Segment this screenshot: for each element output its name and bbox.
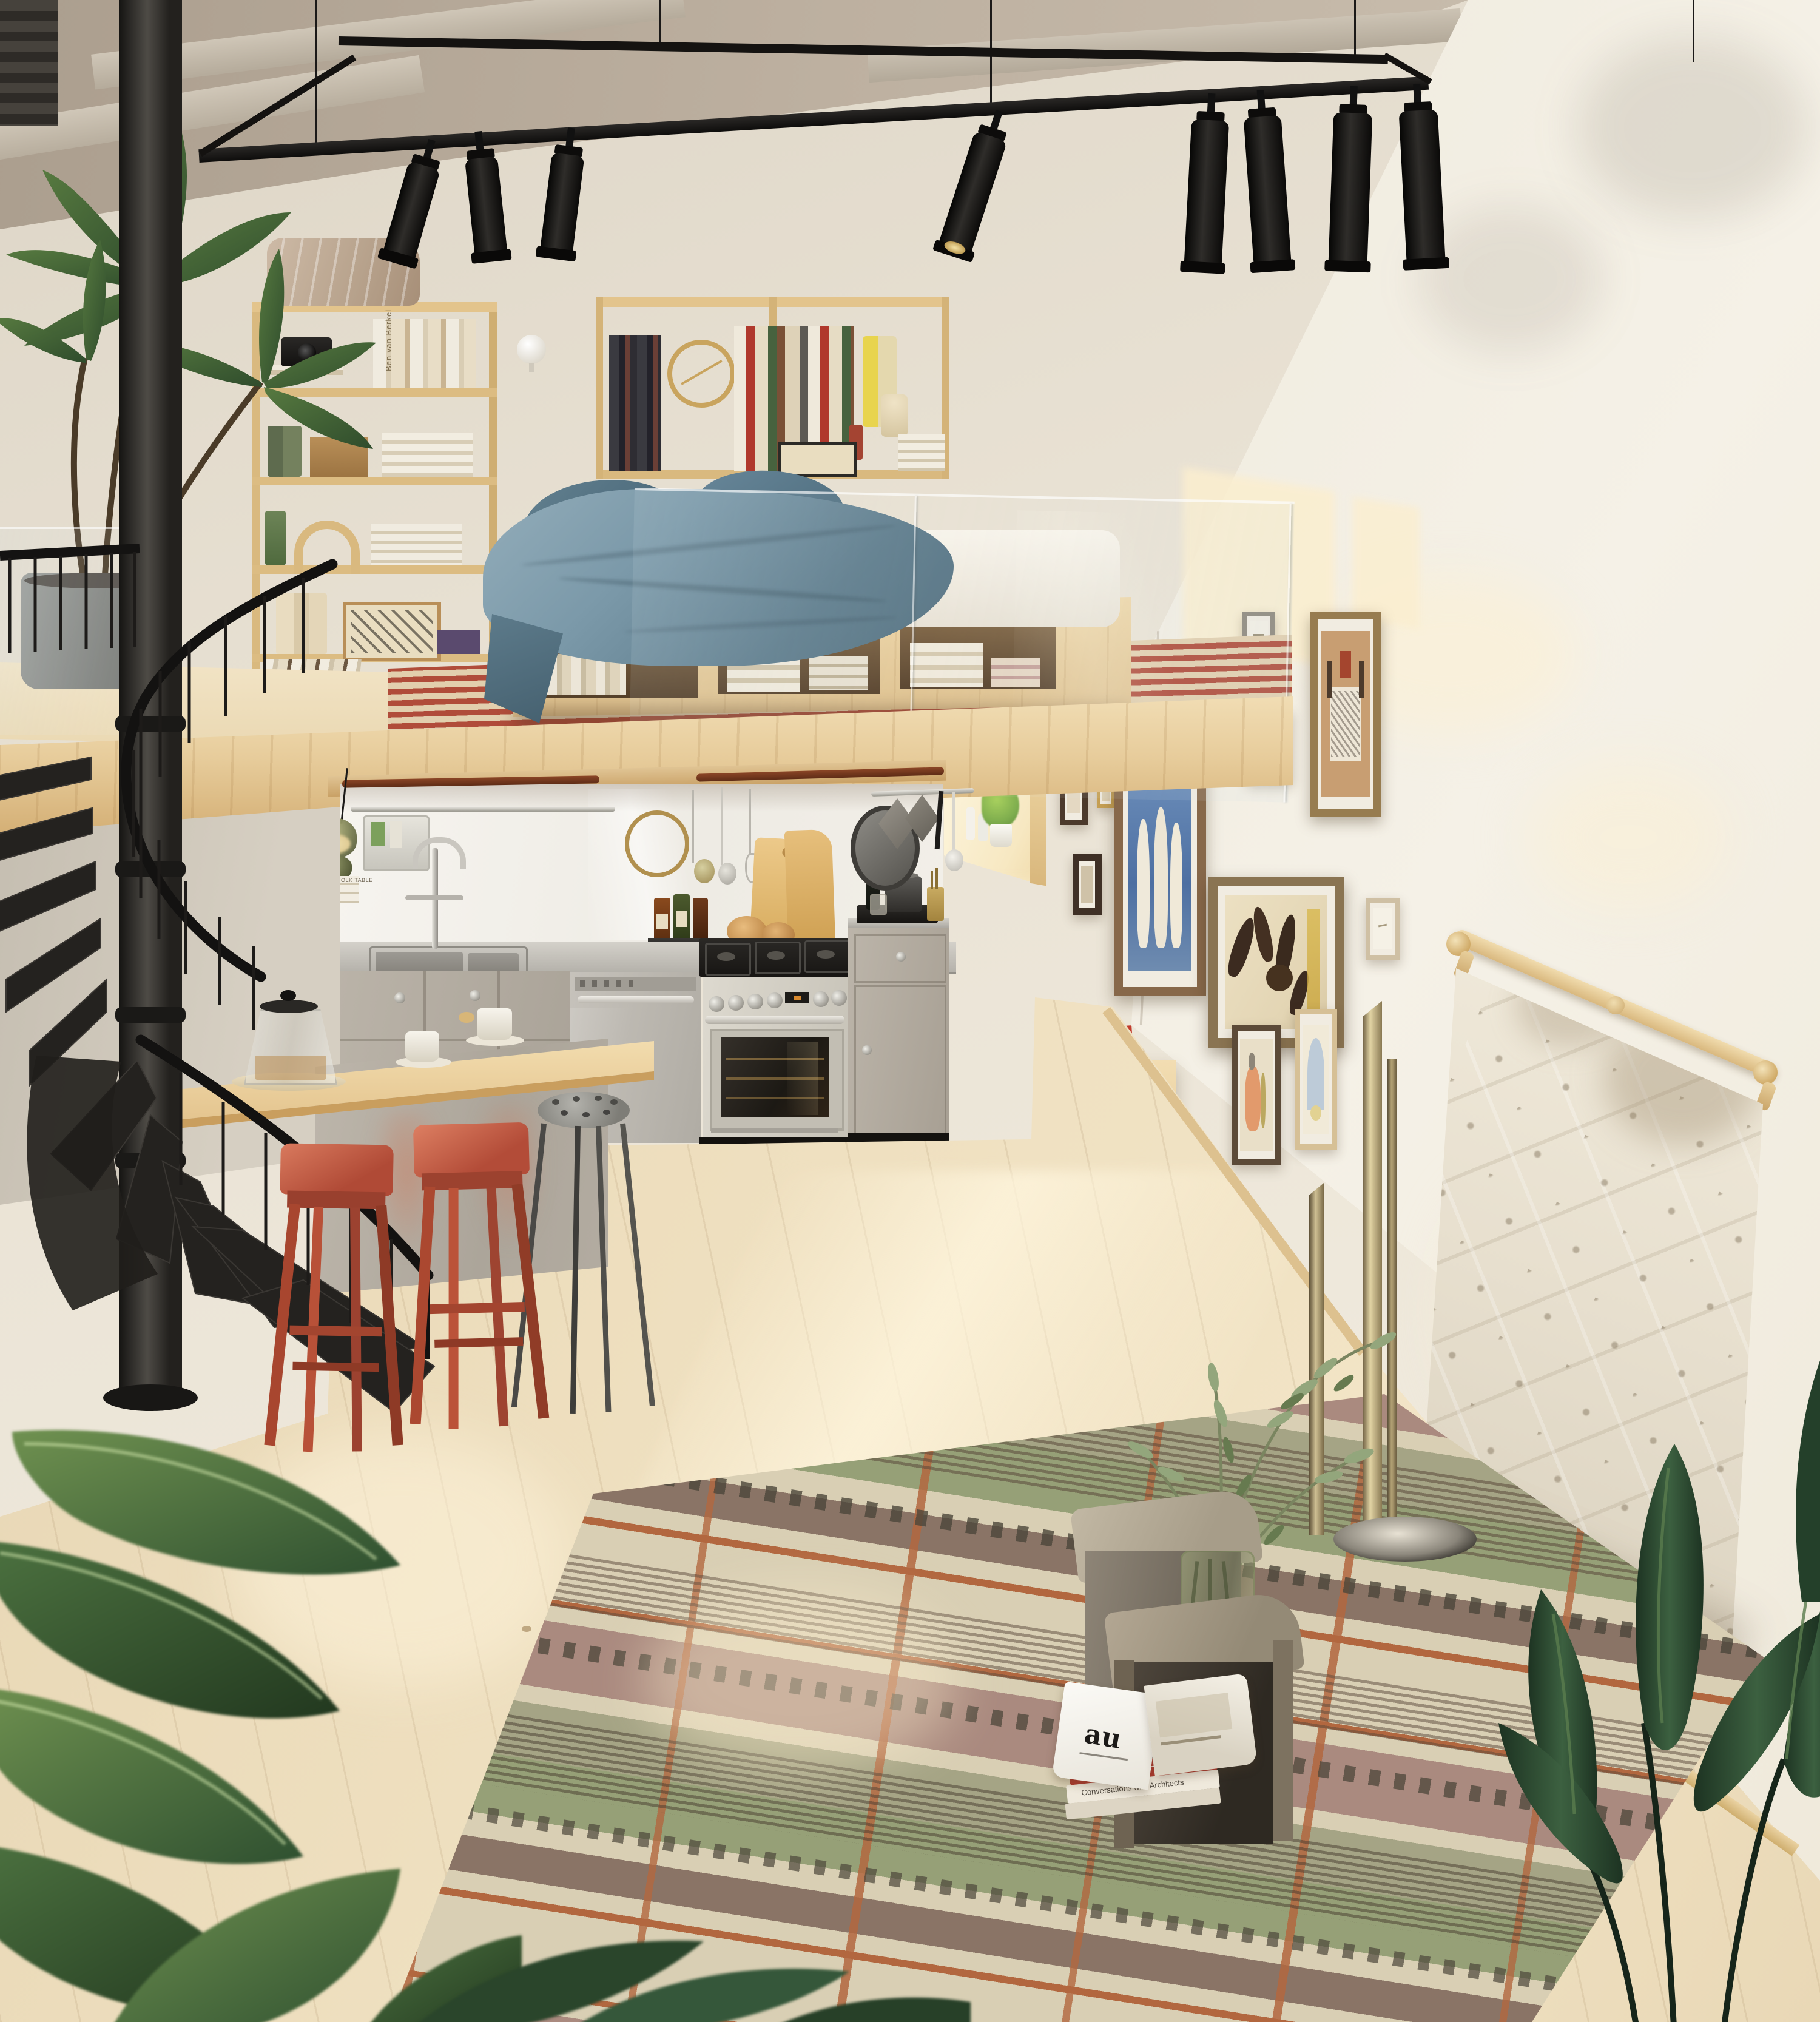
spotlight — [1184, 115, 1229, 269]
tall-cabinet-drawer — [854, 934, 946, 983]
range-knob — [747, 994, 763, 1009]
spotlight — [1328, 107, 1372, 268]
rail-mid-peg — [1606, 996, 1625, 1014]
suspension-cable — [659, 0, 661, 45]
range-knob — [767, 992, 783, 1008]
rug-sun-patch — [643, 1589, 959, 1771]
magazine-right-page — [1144, 1673, 1257, 1776]
picture-frame-tiny-light — [1366, 898, 1400, 960]
leaf-right-edge — [1723, 1286, 1820, 1602]
range-knob — [813, 991, 829, 1007]
plant-leaves-bottom — [364, 1838, 971, 2022]
oven-door — [710, 1029, 844, 1131]
utensil-cup — [927, 887, 944, 921]
rail-end-cap — [1753, 1060, 1778, 1085]
artwork-tapestry — [1321, 631, 1369, 798]
oven-window — [721, 1037, 829, 1117]
book-row: Ben van Berkel — [373, 319, 476, 388]
tape-object — [778, 442, 857, 477]
sunlight-dapple — [1529, 764, 1729, 910]
range-knob — [728, 995, 744, 1011]
dough-whisk — [945, 849, 963, 871]
flat-book-stack — [898, 434, 945, 471]
picture-frame-fashion — [1232, 1025, 1281, 1165]
shadow-dapple — [1577, 36, 1808, 218]
wide-wall-shelf — [596, 297, 949, 487]
tall-cabinet-door — [854, 985, 946, 1134]
artwork — [1081, 866, 1094, 903]
range-display — [785, 992, 809, 1003]
artwork — [1373, 908, 1392, 950]
magazine-title: au — [1082, 1718, 1124, 1755]
hanging-whisk — [749, 789, 751, 855]
shadow-dapple — [1420, 206, 1602, 352]
range-knob — [831, 990, 847, 1006]
artwork-fashion-figure — [1240, 1039, 1273, 1151]
sun-patch-wall — [1353, 497, 1420, 629]
dark-book-group — [609, 335, 661, 471]
suspension-cable — [1693, 0, 1694, 62]
round-hoop — [667, 340, 735, 408]
shelf-upright — [596, 297, 603, 479]
oven-drawer — [711, 1128, 838, 1133]
picture-frame-tapestry — [1310, 612, 1381, 817]
floor-knot — [522, 1626, 531, 1632]
spool — [881, 394, 908, 437]
tall-cabinet — [848, 927, 949, 1150]
small-glass — [870, 894, 887, 915]
loft-interior-scene: Ben van Berkel — [0, 0, 1820, 2022]
artwork-three-figures — [1128, 776, 1192, 971]
picture-frame-square-mini — [1073, 854, 1102, 915]
sphere-lamp — [514, 335, 548, 372]
dough-whisk — [952, 792, 955, 855]
white-book-stack — [382, 433, 473, 477]
spotlight — [1398, 105, 1446, 266]
open-magazine: au — [1058, 1674, 1252, 1790]
shelf-book-spine-text: Ben van Berkel — [384, 309, 393, 371]
suspension-cable — [1354, 0, 1356, 56]
